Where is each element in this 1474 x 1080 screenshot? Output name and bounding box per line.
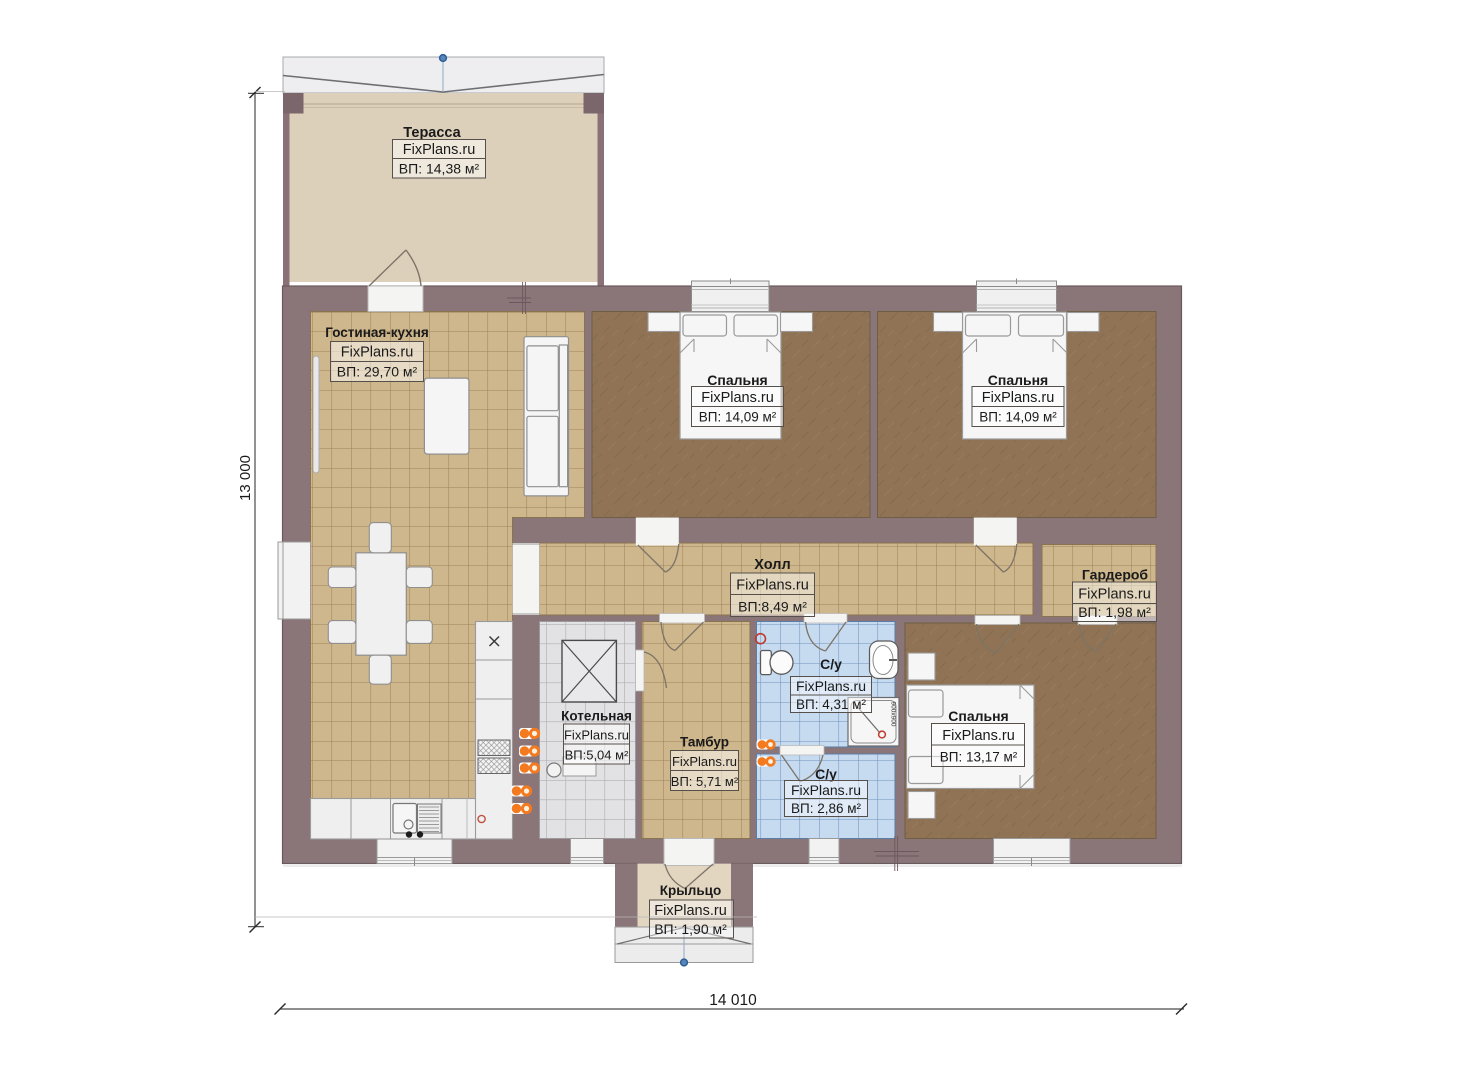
svg-text:Терасса: Терасса — [403, 125, 461, 141]
svg-text:FixPlans.ru: FixPlans.ru — [736, 578, 809, 594]
svg-text:С/у: С/у — [820, 656, 842, 672]
svg-text:ВП: 1,98 м²: ВП: 1,98 м² — [1078, 604, 1151, 620]
svg-text:Тамбур: Тамбур — [680, 735, 729, 750]
svg-text:Гостиная-кухня: Гостиная-кухня — [325, 325, 428, 340]
svg-text:ВП: 14,09 м²: ВП: 14,09 м² — [979, 410, 1057, 425]
svg-text:FixPlans.ru: FixPlans.ru — [403, 142, 476, 158]
svg-text:FixPlans.ru: FixPlans.ru — [791, 782, 861, 798]
svg-text:ВП: 5,71 м²: ВП: 5,71 м² — [671, 774, 739, 789]
svg-text:FixPlans.ru: FixPlans.ru — [564, 728, 629, 743]
svg-text:FixPlans.ru: FixPlans.ru — [1078, 587, 1151, 603]
svg-text:FixPlans.ru: FixPlans.ru — [341, 345, 414, 361]
svg-text:ВП: 14,38 м²: ВП: 14,38 м² — [399, 161, 480, 177]
svg-text:Гардероб: Гардероб — [1082, 567, 1149, 583]
svg-text:С/у: С/у — [815, 766, 837, 782]
svg-text:ВП:5,04 м²: ВП:5,04 м² — [565, 748, 629, 763]
svg-text:FixPlans.ru: FixPlans.ru — [672, 754, 737, 769]
svg-text:ВП: 14,09 м²: ВП: 14,09 м² — [699, 410, 777, 425]
svg-text:14 010: 14 010 — [709, 992, 757, 1009]
svg-text:FixPlans.ru: FixPlans.ru — [942, 728, 1015, 744]
svg-text:ВП: 1,90 м²: ВП: 1,90 м² — [654, 921, 727, 937]
svg-text:Котельная: Котельная — [561, 709, 632, 724]
svg-text:ВП: 2,86 м²: ВП: 2,86 м² — [791, 801, 862, 816]
svg-text:ВП:8,49 м²: ВП:8,49 м² — [738, 599, 807, 615]
svg-text:Спальня: Спальня — [988, 372, 1048, 388]
svg-text:Крыльцо: Крыльцо — [660, 883, 721, 898]
svg-text:Спальня: Спальня — [948, 708, 1008, 724]
svg-text:ВП: 13,17 м²: ВП: 13,17 м² — [940, 750, 1018, 765]
svg-text:Холл: Холл — [754, 557, 790, 573]
svg-text:Спальня: Спальня — [707, 372, 767, 388]
svg-text:ВП: 4,31 м²: ВП: 4,31 м² — [796, 697, 867, 712]
svg-text:900х900: 900х900 — [890, 702, 897, 727]
svg-text:13 000: 13 000 — [237, 455, 254, 501]
svg-text:ВП: 29,70 м²: ВП: 29,70 м² — [337, 364, 418, 380]
svg-text:FixPlans.ru: FixPlans.ru — [701, 390, 774, 406]
svg-text:FixPlans.ru: FixPlans.ru — [982, 390, 1055, 406]
svg-text:FixPlans.ru: FixPlans.ru — [796, 678, 866, 694]
